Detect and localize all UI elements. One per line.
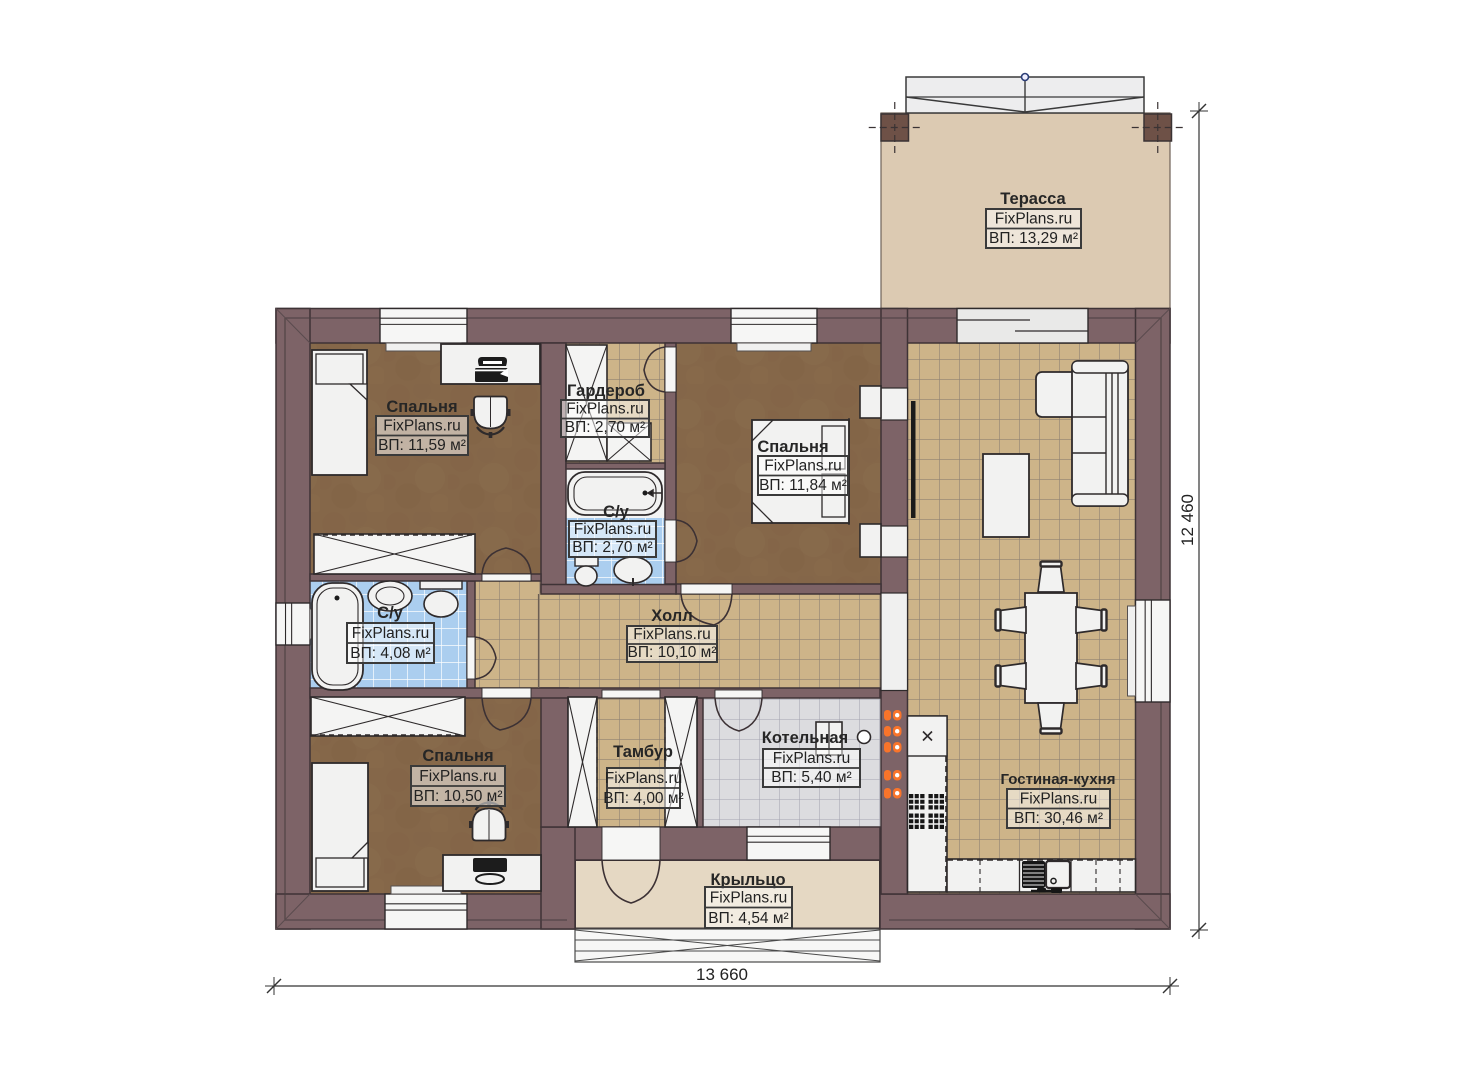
svg-text:ВП: 2,70 м²: ВП: 2,70 м² [565,419,645,436]
svg-text:ВП: 11,84 м²: ВП: 11,84 м² [759,477,847,494]
svg-text:FixPlans.ru: FixPlans.ru [605,770,683,787]
svg-text:FixPlans.ru: FixPlans.ru [633,626,711,643]
svg-text:Спальня: Спальня [422,747,493,765]
svg-text:Холл: Холл [651,607,692,625]
svg-text:FixPlans.ru: FixPlans.ru [574,521,652,538]
svg-text:ВП: 2,70 м²: ВП: 2,70 м² [572,539,652,556]
svg-text:ВП: 10,10 м²: ВП: 10,10 м² [627,644,716,661]
svg-text:ВП: 4,08 м²: ВП: 4,08 м² [350,645,430,662]
svg-text:Тамбур: Тамбур [613,743,673,761]
svg-text:FixPlans.ru: FixPlans.ru [1020,791,1098,808]
svg-text:С/у: С/у [603,503,630,521]
svg-text:Котельная: Котельная [762,729,848,747]
svg-text:С/у: С/у [377,604,404,622]
svg-text:ВП: 10,50 м²: ВП: 10,50 м² [413,788,502,805]
svg-text:12 460: 12 460 [1178,494,1197,546]
svg-text:Спальня: Спальня [386,398,457,416]
svg-text:ВП: 5,40 м²: ВП: 5,40 м² [771,769,851,786]
svg-text:ВП: 4,00 м²: ВП: 4,00 м² [603,790,683,807]
svg-text:Спальня: Спальня [757,438,828,456]
svg-text:FixPlans.ru: FixPlans.ru [995,211,1073,228]
svg-text:ВП: 30,46 м²: ВП: 30,46 м² [1014,810,1103,827]
svg-text:FixPlans.ru: FixPlans.ru [383,418,461,435]
svg-text:ВП: 11,59 м²: ВП: 11,59 м² [378,437,466,454]
svg-text:Терасса: Терасса [1000,190,1066,208]
svg-text:FixPlans.ru: FixPlans.ru [419,768,497,785]
svg-text:FixPlans.ru: FixPlans.ru [566,401,644,418]
svg-text:Гостиная-кухня: Гостиная-кухня [1001,771,1116,788]
svg-text:Гардероб: Гардероб [567,382,645,400]
svg-text:FixPlans.ru: FixPlans.ru [764,458,842,475]
svg-text:FixPlans.ru: FixPlans.ru [710,890,788,907]
svg-text:FixPlans.ru: FixPlans.ru [352,625,430,642]
svg-text:ВП: 4,54 м²: ВП: 4,54 м² [708,910,788,927]
svg-text:ВП: 13,29 м²: ВП: 13,29 м² [989,230,1078,247]
svg-text:FixPlans.ru: FixPlans.ru [773,750,851,767]
svg-text:13 660: 13 660 [696,965,748,984]
